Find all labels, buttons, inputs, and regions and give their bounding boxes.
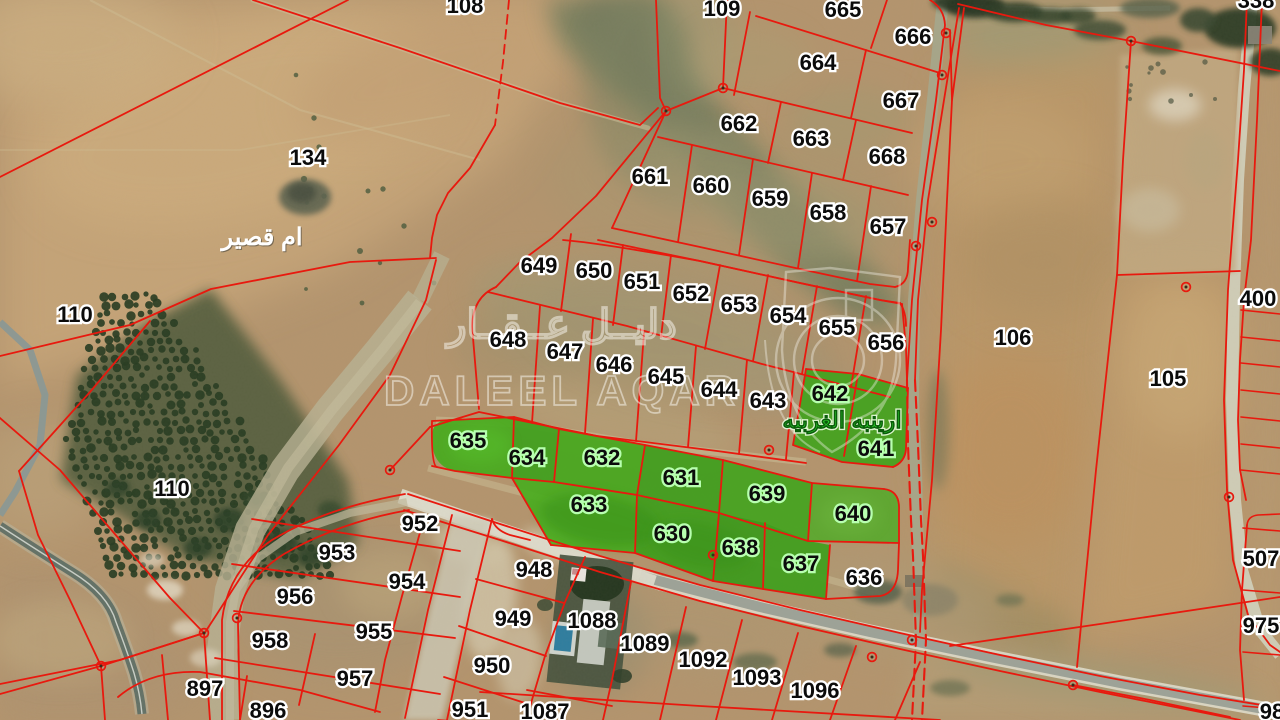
svg-text:956: 956 (277, 584, 314, 609)
svg-text:641: 641 (858, 436, 895, 461)
svg-text:105: 105 (1150, 366, 1187, 391)
svg-text:635: 635 (450, 428, 487, 453)
svg-text:663: 663 (793, 126, 830, 151)
svg-text:648: 648 (490, 327, 527, 352)
svg-text:108: 108 (447, 0, 484, 18)
svg-text:134: 134 (290, 145, 327, 170)
svg-text:658: 658 (810, 200, 847, 225)
svg-text:948: 948 (516, 557, 553, 582)
svg-text:665: 665 (825, 0, 862, 22)
svg-text:651: 651 (624, 269, 661, 294)
svg-text:954: 954 (389, 569, 426, 594)
svg-text:666: 666 (895, 24, 932, 49)
svg-text:659: 659 (752, 186, 789, 211)
svg-text:507: 507 (1243, 546, 1280, 571)
svg-text:637: 637 (783, 551, 820, 576)
svg-text:109: 109 (704, 0, 741, 21)
svg-text:646: 646 (596, 352, 633, 377)
svg-text:664: 664 (800, 50, 837, 75)
svg-text:631: 631 (663, 465, 700, 490)
svg-text:98: 98 (1260, 699, 1280, 720)
svg-text:106: 106 (995, 325, 1032, 350)
svg-text:657: 657 (870, 214, 907, 239)
svg-text:645: 645 (648, 364, 685, 389)
svg-text:649: 649 (521, 253, 558, 278)
svg-text:975: 975 (1243, 613, 1280, 638)
svg-text:1087: 1087 (521, 699, 570, 720)
svg-text:1092: 1092 (679, 647, 728, 672)
svg-text:950: 950 (474, 653, 511, 678)
svg-text:654: 654 (770, 303, 807, 328)
svg-text:1096: 1096 (791, 678, 840, 703)
svg-text:400: 400 (1240, 286, 1277, 311)
svg-text:958: 958 (252, 628, 289, 653)
svg-text:1089: 1089 (621, 631, 670, 656)
svg-text:644: 644 (701, 377, 738, 402)
svg-text:634: 634 (509, 445, 546, 470)
svg-text:636: 636 (846, 565, 883, 590)
svg-text:656: 656 (868, 330, 905, 355)
svg-text:633: 633 (571, 492, 608, 517)
svg-text:630: 630 (654, 521, 691, 546)
svg-text:638: 638 (722, 535, 759, 560)
svg-text:110: 110 (154, 476, 190, 501)
svg-text:662: 662 (721, 111, 758, 136)
svg-text:661: 661 (632, 164, 669, 189)
svg-text:ارينبه الغربيه: ارينبه الغربيه (782, 407, 901, 435)
svg-text:110: 110 (57, 302, 93, 327)
svg-text:642: 642 (812, 381, 849, 406)
svg-text:957: 957 (337, 666, 374, 691)
svg-text:951: 951 (452, 697, 489, 720)
svg-text:DALEEL AQAR: DALEEL AQAR (384, 367, 740, 414)
svg-text:655: 655 (819, 315, 856, 340)
svg-text:953: 953 (319, 540, 356, 565)
svg-text:338: 338 (1238, 0, 1275, 13)
svg-text:653: 653 (721, 292, 758, 317)
svg-text:1093: 1093 (733, 665, 782, 690)
svg-text:667: 667 (883, 88, 920, 113)
svg-text:952: 952 (402, 511, 439, 536)
svg-text:1088: 1088 (568, 608, 617, 633)
svg-text:632: 632 (584, 445, 621, 470)
svg-text:640: 640 (835, 501, 872, 526)
svg-text:949: 949 (495, 606, 532, 631)
svg-text:896: 896 (250, 698, 287, 720)
svg-text:660: 660 (693, 173, 730, 198)
svg-text:639: 639 (749, 481, 786, 506)
svg-text:897: 897 (187, 676, 224, 701)
svg-text:652: 652 (673, 281, 710, 306)
svg-text:647: 647 (547, 339, 584, 364)
svg-text:668: 668 (869, 144, 906, 169)
svg-text:955: 955 (356, 619, 393, 644)
svg-text:650: 650 (576, 258, 613, 283)
svg-text:643: 643 (750, 388, 787, 413)
svg-text:ام قصير: ام قصير (220, 224, 303, 252)
